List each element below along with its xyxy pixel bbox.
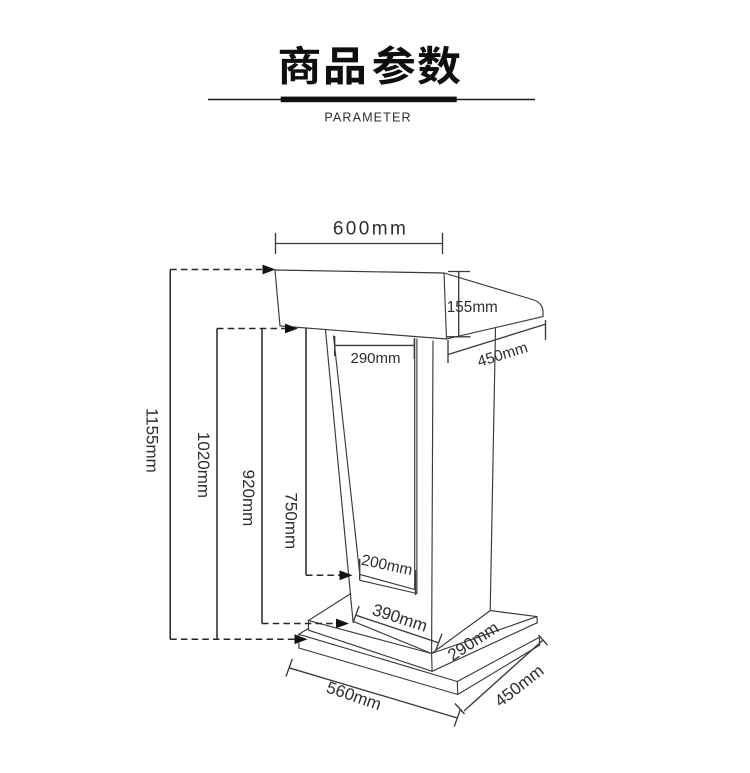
- svg-text:450mm: 450mm: [491, 661, 547, 711]
- svg-text:1020mm: 1020mm: [194, 432, 213, 498]
- svg-text:155mm: 155mm: [447, 299, 498, 316]
- svg-text:600mm: 600mm: [333, 219, 408, 240]
- svg-text:PARAMETER: PARAMETER: [324, 111, 411, 125]
- svg-text:750mm: 750mm: [282, 492, 301, 549]
- svg-text:290mm: 290mm: [444, 618, 502, 665]
- svg-text:1155mm: 1155mm: [143, 408, 162, 473]
- svg-text:560mm: 560mm: [324, 678, 384, 714]
- svg-text:200mm: 200mm: [360, 552, 414, 579]
- svg-text:920mm: 920mm: [239, 470, 258, 527]
- svg-text:290mm: 290mm: [350, 350, 400, 367]
